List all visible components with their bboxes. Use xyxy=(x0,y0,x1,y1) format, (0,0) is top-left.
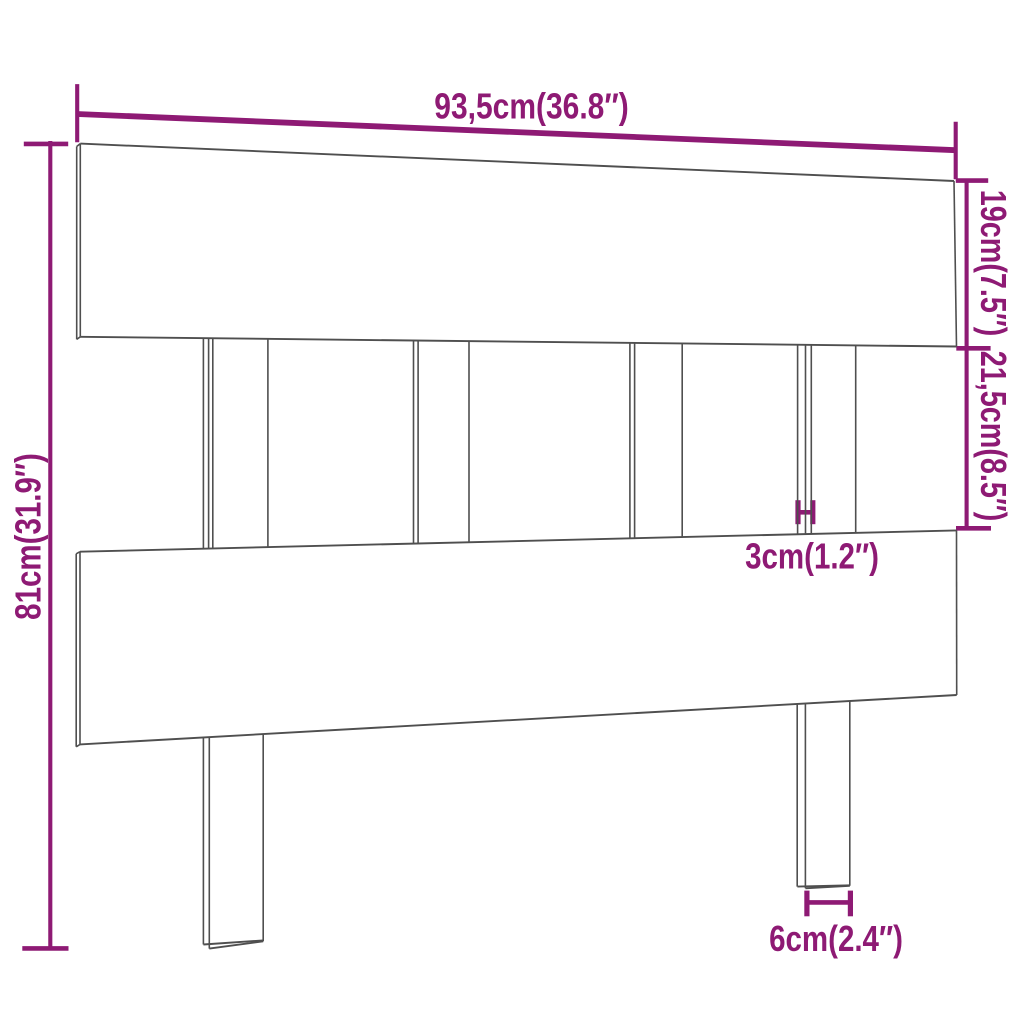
svg-text:21,5cm(8.5″): 21,5cm(8.5″) xyxy=(973,351,1014,522)
svg-text:93,5cm(36.8″): 93,5cm(36.8″) xyxy=(434,87,628,127)
svg-text:3cm(1.2″): 3cm(1.2″) xyxy=(745,535,879,575)
svg-text:19cm(7.5″): 19cm(7.5″) xyxy=(973,190,1014,337)
svg-text:6cm(2.4″): 6cm(2.4″) xyxy=(769,918,903,958)
svg-text:81cm(31.9″): 81cm(31.9″) xyxy=(8,453,48,620)
